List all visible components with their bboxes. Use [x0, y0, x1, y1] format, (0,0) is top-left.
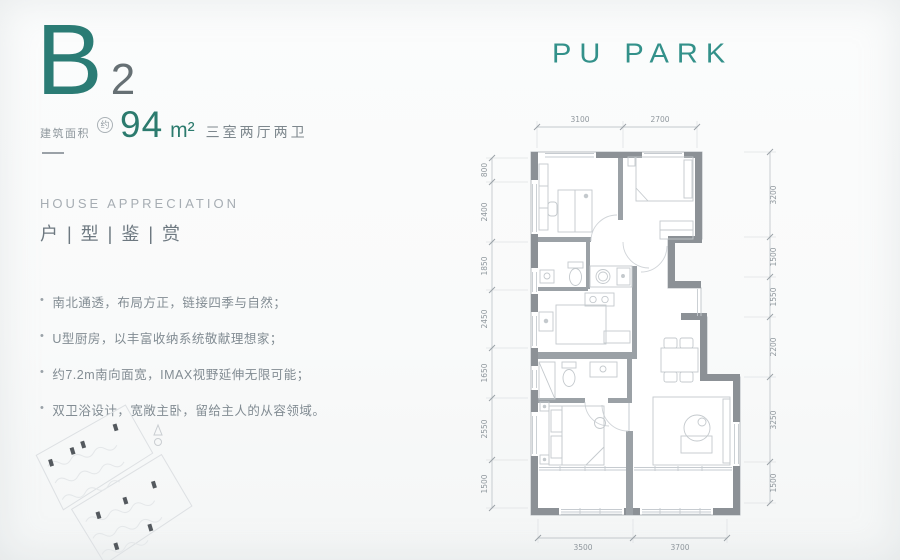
dim-left-1: 800: [480, 163, 489, 178]
dim-left-5: 1650: [480, 363, 489, 382]
feature-text: 南北通透，布局方正，链接四季与自然；: [52, 292, 286, 311]
divider-line: [42, 152, 64, 154]
feature-item: •约7.2m南向面宽，IMAX视野延伸无限可能；: [40, 364, 325, 383]
approx-badge: 约: [97, 117, 113, 133]
dim-right-6: 1500: [769, 473, 778, 492]
feature-item: •U型厨房，以丰富收纳系统敬献理想家；: [40, 328, 325, 347]
feature-text: U型厨房，以丰富收纳系统敬献理想家；: [52, 328, 283, 347]
dim-right-4: 2200: [769, 337, 778, 356]
dim-right-3: 1550: [769, 287, 778, 306]
area-row: 建筑面积 约 94 m² 三室两厅两卫: [40, 104, 308, 146]
dim-left-3: 1850: [480, 256, 489, 275]
area-unit: m²: [170, 119, 195, 143]
dim-bottom-2: 3700: [670, 543, 689, 552]
feature-item: •南北通透，布局方正，链接四季与自然；: [40, 292, 325, 311]
brochure-canvas: B 2 建筑面积 约 94 m² 三室两厅两卫 HOUSE APPRECIATI…: [0, 0, 900, 560]
area-label: 建筑面积: [40, 125, 90, 141]
bullet-icon: •: [40, 328, 44, 345]
dim-left-2: 2400: [480, 202, 489, 221]
layout-text: 三室两厅两卫: [206, 122, 308, 142]
feature-text: 约7.2m南向面宽，IMAX视野延伸无限可能；: [52, 364, 309, 383]
floor-plan: 3100 2700 3500 3700 800 2400 1850 2450 1…: [455, 108, 795, 560]
brand-logo: PU PARK: [552, 39, 733, 71]
dim-right-1: 3200: [769, 185, 778, 204]
dim-top-2: 2700: [650, 115, 669, 124]
area-value: 94: [120, 104, 163, 146]
site-plan-sketch: [30, 398, 205, 560]
section-title-cn: 户 | 型 | 鉴 | 赏: [40, 220, 182, 246]
section-subtitle-en: HOUSE APPRECIATION: [40, 196, 239, 211]
dim-left-4: 2450: [480, 309, 489, 328]
unit-code-letter: B: [36, 14, 103, 106]
dim-right-2: 1500: [769, 247, 778, 266]
dim-left-7: 1500: [480, 474, 489, 493]
unit-code: B 2: [36, 14, 135, 106]
bullet-icon: •: [40, 292, 44, 309]
dim-right-5: 3250: [769, 410, 778, 429]
dim-bottom-1: 3500: [573, 543, 592, 552]
highlighted-buildings: [44, 418, 171, 560]
north-compass-icon: [154, 425, 162, 446]
dim-left-6: 2550: [480, 419, 489, 438]
dim-top-1: 3100: [570, 115, 589, 124]
bullet-icon: •: [40, 364, 44, 381]
unit-code-number: 2: [111, 58, 135, 102]
